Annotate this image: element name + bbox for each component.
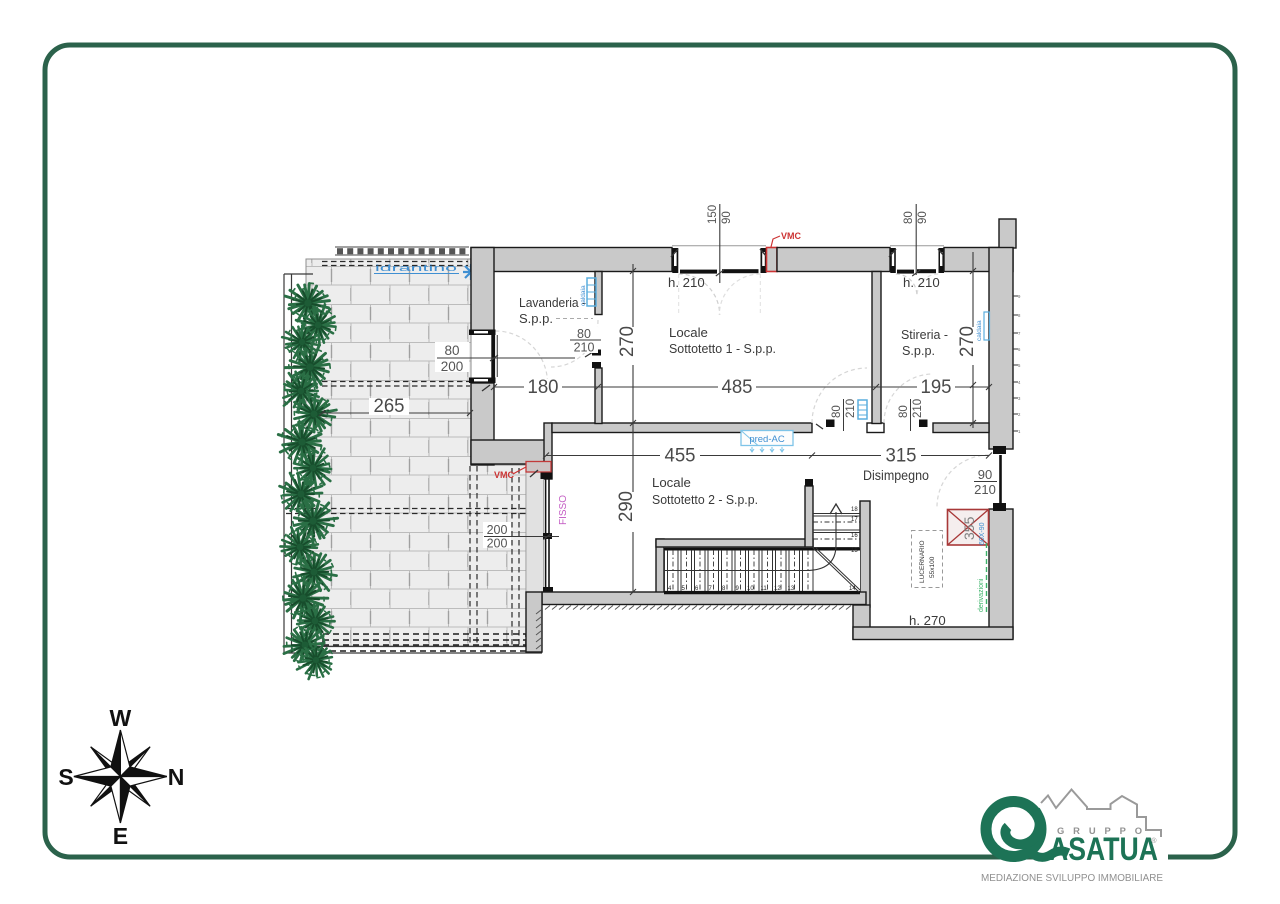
svg-text:W: W bbox=[110, 705, 132, 731]
svg-text:VMC: VMC bbox=[781, 231, 802, 241]
svg-text:LUCERNARIO: LUCERNARIO bbox=[919, 540, 926, 583]
svg-text:80: 80 bbox=[831, 405, 843, 418]
svg-text:Disimpegno: Disimpegno bbox=[863, 467, 929, 483]
svg-text:80: 80 bbox=[577, 327, 591, 341]
svg-text:355: 355 bbox=[961, 516, 977, 540]
svg-text:idrantino: idrantino bbox=[375, 263, 457, 273]
svg-text:Lavanderia -: Lavanderia - bbox=[519, 295, 586, 310]
svg-text:MEDIAZIONE SVILUPPO IMMOBILIAR: MEDIAZIONE SVILUPPO IMMOBILIARE bbox=[981, 872, 1163, 884]
svg-text:270: 270 bbox=[617, 326, 638, 357]
svg-text:270: 270 bbox=[957, 326, 978, 357]
svg-text:pred-AC: pred-AC bbox=[749, 434, 785, 445]
svg-text:55x100: 55x100 bbox=[929, 556, 936, 578]
svg-text:h. 270: h. 270 bbox=[909, 613, 946, 628]
svg-text:7: 7 bbox=[1018, 331, 1021, 336]
svg-text:18: 18 bbox=[851, 507, 858, 513]
svg-text:®: ® bbox=[1151, 836, 1157, 845]
svg-text:200: 200 bbox=[487, 523, 508, 537]
svg-text:caldaia: caldaia bbox=[580, 285, 587, 306]
svg-text:S.p.p.: S.p.p. bbox=[519, 311, 553, 326]
svg-text:E: E bbox=[113, 823, 128, 849]
svg-text:290: 290 bbox=[616, 491, 637, 522]
svg-text:200: 200 bbox=[441, 359, 464, 374]
svg-text:N: N bbox=[168, 764, 185, 790]
svg-text:8: 8 bbox=[1018, 313, 1021, 318]
svg-text:210: 210 bbox=[574, 341, 595, 355]
svg-text:FISSO: FISSO bbox=[558, 495, 569, 525]
svg-text:ASATUA: ASATUA bbox=[1049, 831, 1158, 867]
svg-text:17: 17 bbox=[851, 517, 858, 523]
svg-text:h. 210: h. 210 bbox=[668, 275, 705, 290]
svg-text:90: 90 bbox=[978, 467, 992, 482]
svg-text:derivazioni: derivazioni bbox=[978, 578, 985, 612]
svg-text:80: 80 bbox=[898, 405, 910, 418]
svg-text:15: 15 bbox=[851, 548, 858, 554]
svg-text:210: 210 bbox=[912, 399, 924, 418]
svg-text:16: 16 bbox=[851, 533, 858, 539]
svg-text:h. 210: h. 210 bbox=[903, 275, 940, 290]
svg-text:60X-90: 60X-90 bbox=[979, 522, 986, 545]
svg-text:4: 4 bbox=[1018, 380, 1021, 385]
svg-text:Locale: Locale bbox=[669, 325, 708, 340]
svg-text:150: 150 bbox=[707, 205, 719, 224]
svg-text:1: 1 bbox=[1018, 429, 1021, 434]
svg-text:Sottotetto 2 - S.p.p.: Sottotetto 2 - S.p.p. bbox=[652, 492, 758, 507]
svg-text:315: 315 bbox=[886, 446, 917, 467]
svg-text:S.p.p.: S.p.p. bbox=[902, 343, 935, 358]
svg-text:S: S bbox=[58, 764, 73, 790]
svg-text:caldaia: caldaia bbox=[976, 320, 983, 341]
svg-text:195: 195 bbox=[921, 377, 952, 398]
svg-text:3: 3 bbox=[1018, 396, 1021, 401]
svg-text:80: 80 bbox=[903, 211, 915, 224]
svg-text:180: 180 bbox=[528, 377, 559, 398]
svg-text:2: 2 bbox=[1018, 412, 1021, 417]
svg-text:200: 200 bbox=[487, 537, 508, 551]
svg-text:10: 10 bbox=[747, 586, 754, 592]
svg-text:12: 12 bbox=[774, 586, 781, 592]
svg-text:455: 455 bbox=[665, 446, 696, 467]
svg-text:9: 9 bbox=[1018, 294, 1021, 299]
svg-text:265: 265 bbox=[374, 396, 405, 417]
svg-text:210: 210 bbox=[974, 482, 996, 497]
svg-text:14: 14 bbox=[849, 586, 856, 592]
svg-text:Stireria -: Stireria - bbox=[901, 327, 948, 342]
svg-text:485: 485 bbox=[722, 377, 753, 398]
svg-text:11: 11 bbox=[761, 586, 768, 592]
svg-text:Locale: Locale bbox=[652, 475, 691, 490]
svg-text:VMC: VMC bbox=[494, 470, 515, 480]
svg-text:80: 80 bbox=[444, 343, 459, 358]
svg-text:Sottotetto 1 - S.p.p.: Sottotetto 1 - S.p.p. bbox=[669, 341, 776, 356]
svg-text:90: 90 bbox=[917, 211, 929, 224]
svg-text:13: 13 bbox=[788, 586, 795, 592]
svg-text:210: 210 bbox=[845, 399, 857, 418]
svg-text:6: 6 bbox=[1018, 347, 1021, 352]
svg-text:5: 5 bbox=[1018, 363, 1021, 368]
svg-text:90: 90 bbox=[721, 211, 733, 224]
